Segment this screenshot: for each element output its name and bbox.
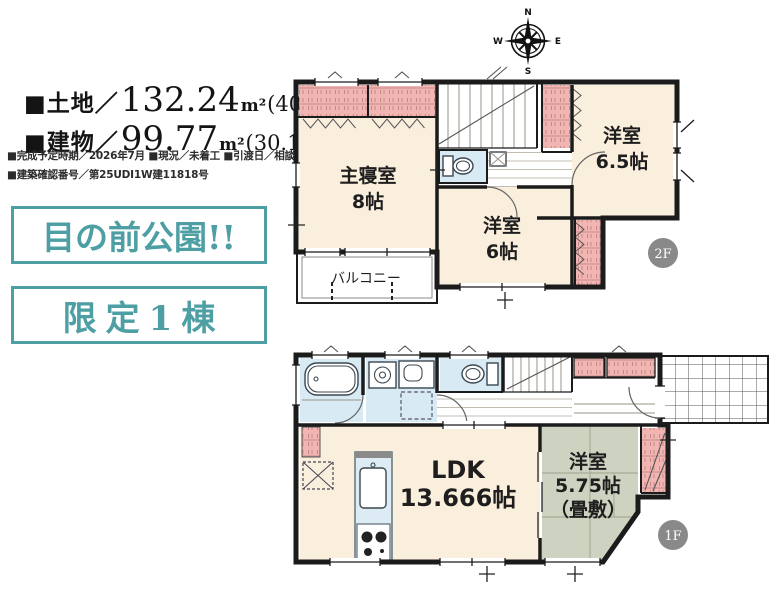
label-master-bedroom-size: 8帖 (352, 190, 384, 213)
washer-icon (369, 362, 396, 388)
floor-badge-1f: 1F (658, 520, 688, 550)
stove-icon (357, 524, 390, 560)
closet-west-6 (575, 220, 603, 285)
shoe-cabinet (574, 358, 604, 377)
compass-east-label: E (555, 37, 561, 47)
room-west-6 (437, 187, 572, 287)
label-ldk: LDK (431, 456, 486, 484)
label-west65: 洋室 (603, 124, 641, 147)
stairs-2f (437, 82, 537, 148)
label-west6-size: 6帖 (486, 240, 518, 263)
floorplan-2f: 主寝室 8帖 洋室 6.5帖 洋室 6帖 バルコニー 2F (288, 67, 694, 309)
shoe-cabinet (607, 358, 655, 377)
toilet-2f (439, 150, 487, 183)
entrance (574, 358, 656, 413)
stairs-1f (505, 355, 572, 392)
floor-badge-2f-text: 2F (654, 247, 671, 262)
floor-badge-2f: 2F (648, 238, 678, 268)
label-tatami: 洋室 (569, 450, 607, 473)
label-tatami-note: （畳敷） (550, 498, 626, 521)
label-ldk-size: 13.666帖 (400, 484, 517, 512)
washbasin-2f-icon (490, 152, 506, 166)
porch (661, 356, 768, 423)
kitchen-sink-icon (360, 468, 386, 508)
compass-north-label: N (524, 8, 532, 18)
label-balcony: バルコニー (331, 271, 401, 287)
floorplan-1f: LDK 13.666帖 洋室 5.75帖 （畳敷） 1F (292, 346, 768, 582)
compass-rose: N S W E (493, 8, 561, 77)
vent-marks-1f (324, 346, 626, 352)
label-west65-size: 6.5帖 (596, 150, 649, 173)
floorplan-drawing: N S W E (0, 0, 780, 590)
floor-badge-1f-text: 1F (664, 529, 681, 544)
toilet-tank-icon (443, 156, 453, 176)
toilet-1f-icon (462, 363, 498, 385)
closet-tatami (641, 428, 668, 493)
front-door-gap (655, 386, 665, 418)
label-west6: 洋室 (483, 214, 521, 237)
kitchen-counter (355, 452, 392, 562)
label-tatami-size: 5.75帖 (555, 474, 621, 497)
vent-marks-2f (328, 67, 507, 79)
compass-west-label: W (493, 37, 503, 47)
label-master-bedroom: 主寝室 (339, 164, 396, 187)
closet-west-65 (542, 85, 570, 152)
compass-south-label: S (525, 67, 531, 77)
hallway-1f (437, 392, 572, 424)
flyer-canvas: ■土地／132.24m²(40.00坪) ■建物／99.77m²(30.18坪)… (0, 0, 780, 590)
pantry-cabinet (302, 427, 320, 457)
